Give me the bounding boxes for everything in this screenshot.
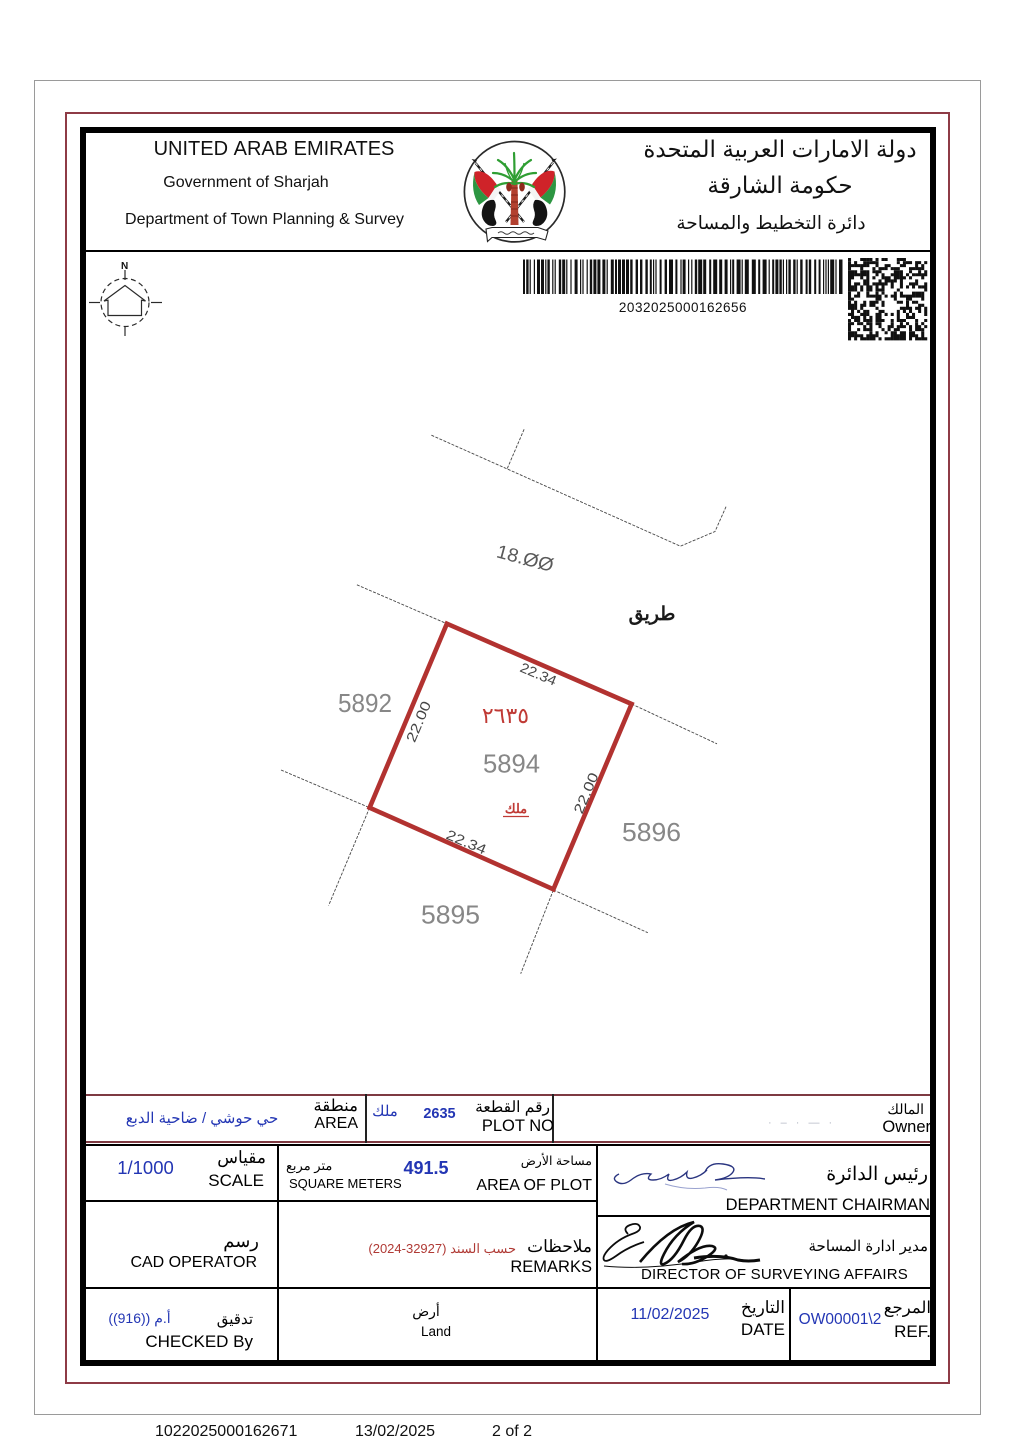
- svg-text:5896: 5896: [622, 817, 681, 847]
- svg-text:18.ØØ: 18.ØØ: [494, 542, 556, 577]
- svg-text:ملك: ملك: [505, 801, 527, 816]
- svg-text:5894: 5894: [483, 749, 540, 779]
- svg-text:٢٦٣٥: ٢٦٣٥: [482, 703, 529, 728]
- svg-text:5895: 5895: [421, 900, 480, 930]
- svg-text:5892: 5892: [338, 688, 392, 718]
- svg-text:طريق: طريق: [629, 604, 676, 625]
- svg-text:22.00: 22.00: [570, 770, 602, 816]
